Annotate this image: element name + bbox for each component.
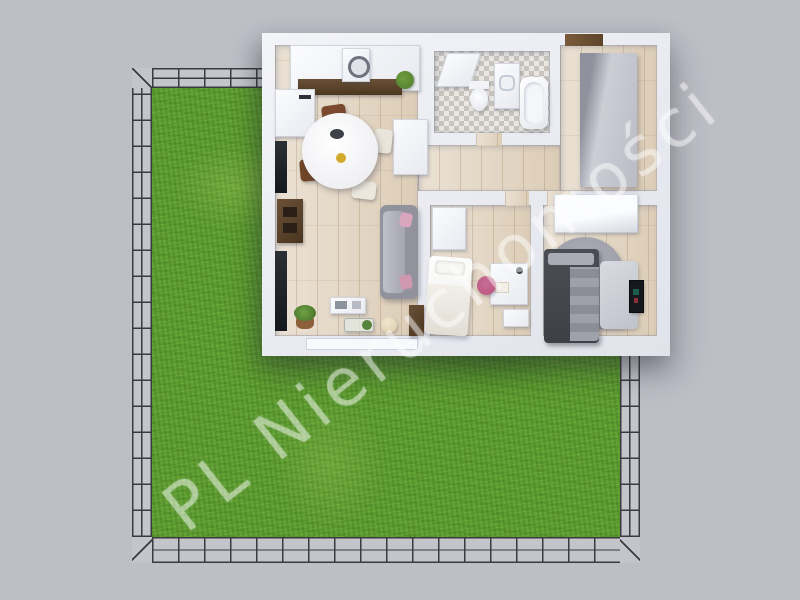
sofa-pillow-top xyxy=(399,212,414,228)
bedroom-master-bed xyxy=(544,249,599,343)
living-window-lower xyxy=(275,251,287,331)
kitchen-peninsula xyxy=(393,119,428,175)
fence-corner-bottom-right xyxy=(620,537,640,563)
coffee-table xyxy=(330,297,366,314)
fence-corner-bottom-left xyxy=(132,537,152,563)
fence-corner-top-left xyxy=(132,68,152,88)
fridge-handle xyxy=(299,95,311,99)
bedroom-master-pillows xyxy=(548,253,594,265)
tv-screen-glow xyxy=(633,289,639,295)
coffee-table-decor xyxy=(352,301,361,309)
scene-background: PL Nieruchomości xyxy=(0,0,800,600)
bedroom-master-wardrobe xyxy=(554,194,638,233)
toilet-bowl xyxy=(470,88,488,111)
washing-machine-drum xyxy=(348,56,370,78)
coffee-table-books xyxy=(335,301,347,309)
bedroom-small-nightstand xyxy=(503,309,529,327)
sofa xyxy=(380,205,418,299)
floor-plan xyxy=(262,33,670,356)
tv-screen-dot xyxy=(634,298,638,303)
table-decor xyxy=(336,153,346,163)
fence-bottom xyxy=(152,537,620,563)
desk-lamp xyxy=(516,267,523,274)
bathroom-door xyxy=(476,133,502,146)
living-window-upper xyxy=(275,141,287,193)
toilet xyxy=(468,81,490,111)
bedroom-small-door xyxy=(505,191,529,206)
storage-shelf xyxy=(409,305,424,336)
tv-console-shelf2 xyxy=(283,223,297,233)
bathtub xyxy=(520,77,548,129)
fence-left xyxy=(132,88,152,537)
dining-table xyxy=(302,113,378,189)
bedroom-small-bed xyxy=(424,256,472,337)
corridor-floor xyxy=(418,145,560,191)
side-table-plant xyxy=(362,320,372,330)
bedroom-small-pillow xyxy=(435,260,466,276)
hallway-wardrobe xyxy=(580,53,637,187)
floor-plant xyxy=(294,305,318,331)
bedroom-master-blanket xyxy=(570,267,599,341)
floor-plant-leaves xyxy=(294,305,316,321)
washing-machine xyxy=(342,48,370,82)
bedroom-small-blanket xyxy=(424,284,470,337)
bedroom-master-tv xyxy=(630,281,643,312)
terrace-window xyxy=(306,338,418,350)
sink-basin xyxy=(499,75,515,91)
tv-console xyxy=(277,199,303,243)
side-table xyxy=(344,318,374,332)
pouf xyxy=(381,317,397,333)
kitchen-plant xyxy=(396,71,414,89)
table-pendant-lamp xyxy=(330,129,344,139)
entry-door xyxy=(565,34,603,46)
bathtub-basin xyxy=(524,82,544,124)
sofa-pillow-bottom xyxy=(399,274,413,290)
bedroom-small-chair xyxy=(477,276,496,295)
sink-vanity xyxy=(494,63,520,109)
tv-console-shelf xyxy=(283,207,297,217)
desk-papers xyxy=(496,283,508,292)
bedroom-small-wardrobe xyxy=(432,207,466,250)
